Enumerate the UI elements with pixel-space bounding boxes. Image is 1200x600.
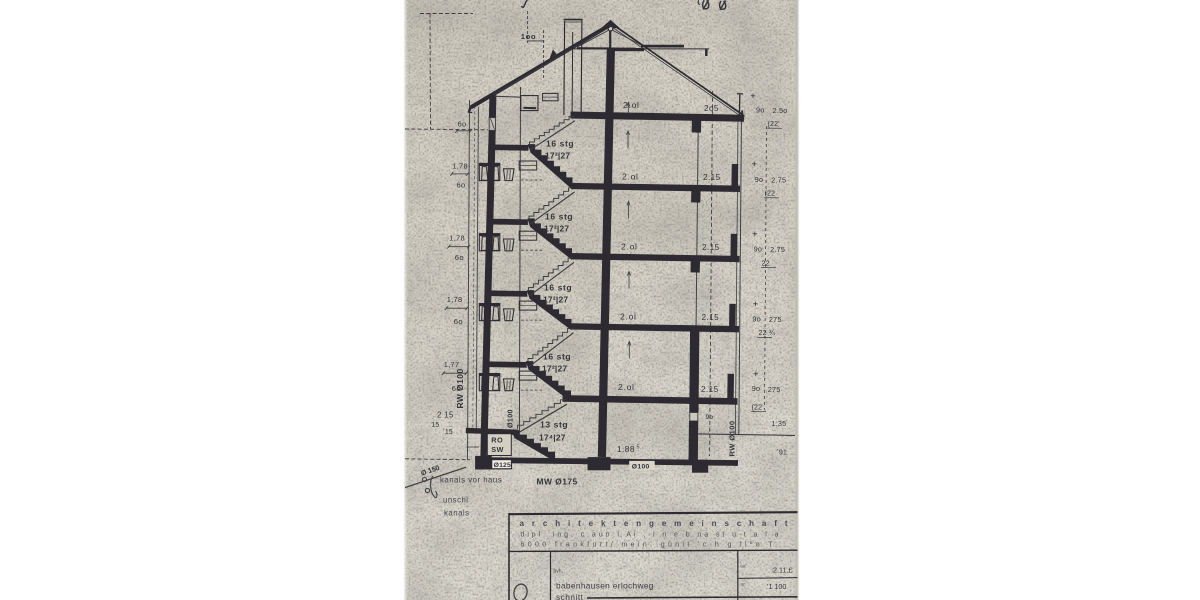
svg-text:6o: 6o	[458, 119, 467, 128]
svg-text:`15: `15	[443, 429, 453, 436]
svg-text:schnitt: schnitt	[556, 592, 584, 600]
svg-text:16 stg: 16 stg	[544, 283, 572, 293]
svg-text:16 stg: 16 stg	[545, 212, 573, 222]
svg-text:m': m'	[741, 582, 746, 587]
svg-text:9o: 9o	[754, 245, 763, 254]
svg-text:Ø100: Ø100	[505, 409, 514, 428]
svg-text:6o: 6o	[457, 181, 466, 190]
svg-text:(22: (22	[765, 191, 776, 198]
svg-text:2o5: 2o5	[704, 104, 719, 113]
svg-text:2.ol: 2.ol	[621, 242, 638, 252]
svg-text:RW Ø100: RW Ø100	[455, 368, 465, 408]
svg-text:5: 5	[637, 444, 640, 450]
svg-text:22: 22	[762, 260, 770, 267]
svg-text:9o: 9o	[752, 384, 761, 393]
svg-text:2.15: 2.15	[702, 313, 720, 322]
svg-text:1.88: 1.88	[617, 444, 635, 454]
svg-text:22 ¾: 22 ¾	[759, 330, 775, 337]
svg-text:2.5o: 2.5o	[773, 106, 788, 115]
svg-text:(22: (22	[752, 404, 763, 411]
svg-text:275: 275	[768, 385, 781, 394]
svg-text:babenhausen erlochweg: babenhausen erlochweg	[556, 581, 654, 591]
svg-text:2 15: 2 15	[437, 410, 454, 419]
svg-text:2.15: 2.15	[702, 243, 720, 252]
svg-text:17⁴|27: 17⁴|27	[539, 433, 566, 443]
svg-text:bvh,: bvh,	[554, 569, 563, 575]
svg-text:Ø100: Ø100	[632, 464, 650, 471]
svg-text:1,78: 1,78	[447, 295, 463, 304]
svg-text:2.ol: 2.ol	[623, 100, 640, 110]
svg-text:15: 15	[432, 422, 440, 429]
svg-text:9o: 9o	[756, 106, 765, 115]
svg-text:9o: 9o	[755, 175, 764, 184]
svg-text:ua': ua'	[741, 564, 747, 569]
svg-text:RO: RO	[491, 435, 503, 444]
svg-text:kanals: kanals	[444, 509, 470, 518]
svg-text:2.75: 2.75	[771, 175, 786, 184]
svg-text:unschl: unschl	[443, 496, 469, 505]
svg-text:17²|27: 17²|27	[542, 364, 567, 374]
svg-text:6o: 6o	[455, 253, 464, 262]
svg-text:17²|27: 17²|27	[543, 295, 568, 305]
svg-text:1.35: 1.35	[772, 419, 787, 428]
svg-text:'1 100: '1 100	[767, 582, 786, 591]
svg-text:2.15: 2.15	[701, 385, 719, 394]
svg-text:16 stg: 16 stg	[546, 139, 574, 149]
svg-text:1oo: 1oo	[521, 32, 536, 41]
svg-text:2.15: 2.15	[703, 173, 721, 182]
svg-text:(22': (22'	[768, 121, 780, 128]
svg-text:17²|27: 17²|27	[545, 151, 570, 161]
svg-text:9o: 9o	[706, 414, 714, 421]
svg-text:Ø125: Ø125	[494, 462, 511, 469]
svg-text:2.11.£: 2.11.£	[773, 566, 792, 575]
svg-text:9o: 9o	[752, 314, 761, 323]
svg-text:2.ol: 2.ol	[620, 312, 637, 322]
svg-text:MW Ø175: MW Ø175	[537, 477, 578, 487]
svg-text:16 stg: 16 stg	[543, 352, 571, 362]
svg-text:1,77: 1,77	[444, 360, 460, 369]
svg-text:13 stg: 13 stg	[540, 420, 568, 430]
svg-text:RW Ø100: RW Ø100	[728, 420, 737, 456]
svg-text:kanals vor haus: kanals vor haus	[440, 475, 502, 484]
svg-text:1,78: 1,78	[452, 161, 468, 170]
svg-text:275: 275	[769, 315, 782, 324]
svg-text:2.ol: 2.ol	[622, 171, 639, 181]
svg-text:SW: SW	[491, 445, 504, 454]
svg-text:1,78: 1,78	[449, 234, 465, 243]
svg-text:2.ol: 2.ol	[618, 382, 635, 392]
svg-text:`91: `91	[777, 447, 787, 456]
svg-text:2.75: 2.75	[770, 245, 785, 254]
svg-text:dipl. ing. c aun l Ai , i n e: dipl. ing. c aun l Ai , i n e b na st u …	[521, 532, 779, 539]
svg-text:6o: 6o	[454, 317, 463, 326]
svg-text:17²|27: 17²|27	[544, 224, 569, 234]
